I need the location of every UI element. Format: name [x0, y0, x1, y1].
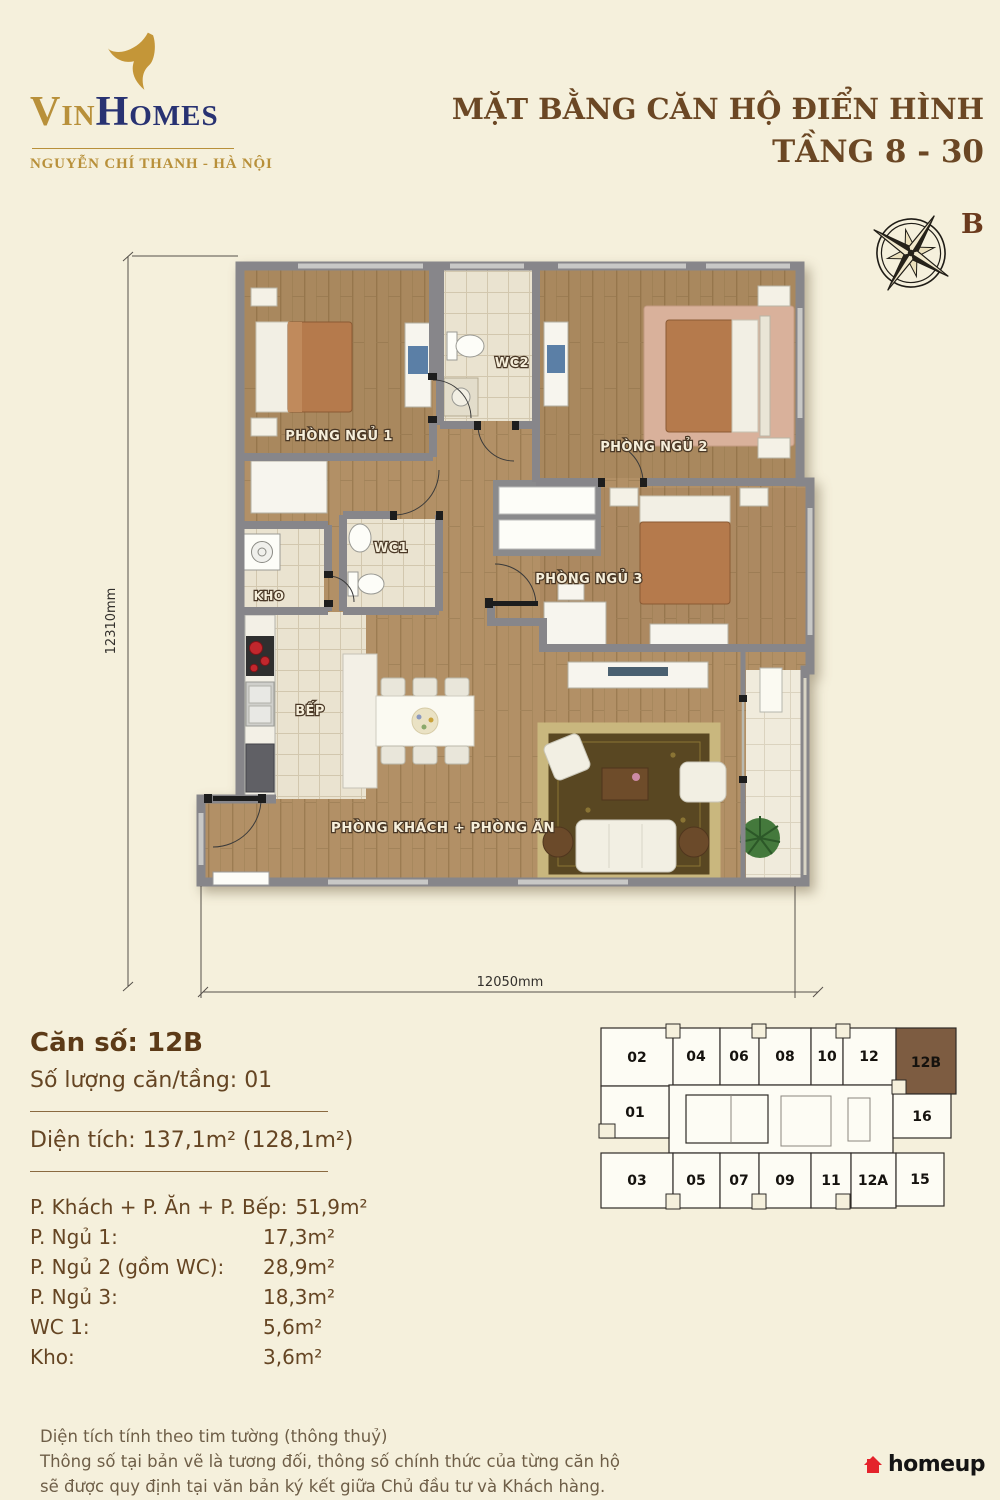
keyplan-unit: 15 — [910, 1172, 929, 1188]
brand-subtitle: NGUYỄN CHÍ THANH - HÀ NỘI — [30, 156, 273, 173]
room-label-bedroom3: PHÒNG NGỦ 3 — [535, 570, 643, 587]
compass-star — [853, 193, 972, 311]
room-area-label: P. Khách + P. Ăn + P. Bếp: — [30, 1192, 295, 1222]
brand-name-homes: Homes — [96, 89, 219, 135]
room-label-wc1: WC1 — [374, 541, 408, 556]
room-area-list: P. Khách + P. Ăn + P. Bếp: 51,9m² P. Ngủ… — [30, 1192, 450, 1372]
keyplan-unit: 12A — [858, 1173, 888, 1189]
brand-name: VinHomes — [30, 88, 219, 136]
floor-plan: PHÒNG NGỦ 1 WC2 PHÒNG NGỦ 2 WC1 KHO PHÒN… — [88, 250, 860, 1010]
room-label-living-dining: PHÒNG KHÁCH + PHÒNG ĂN — [331, 818, 555, 836]
room-area-row: WC 1: 5,6m² — [30, 1312, 450, 1342]
dimension-left: 12310mm — [104, 588, 119, 655]
compass-north-label: B — [961, 209, 984, 240]
homeup-label: homeup — [888, 1452, 985, 1477]
room-area-label: P. Ngủ 1: — [30, 1222, 263, 1252]
vinhomes-bird-icon — [108, 32, 160, 94]
info-divider-1 — [30, 1111, 328, 1112]
info-divider-2 — [30, 1171, 328, 1172]
keyplan-unit-highlighted: 12B — [911, 1055, 941, 1071]
dining-set — [376, 678, 474, 764]
keyplan-unit: 16 — [912, 1109, 931, 1125]
brand-divider — [32, 148, 234, 149]
disclaimer-line3: sẽ được quy định tại văn bản ký kết giữa… — [40, 1474, 620, 1499]
dimension-bottom: 12050mm — [477, 975, 544, 990]
units-per-floor: Số lượng căn/tầng: 01 — [30, 1068, 450, 1093]
room-area-value: 28,9m² — [263, 1252, 335, 1282]
keyplan-unit: 05 — [686, 1173, 705, 1189]
keyplan-unit: 11 — [821, 1173, 840, 1189]
brochure-page: { "page": {"background": "#f5f0dc"}, "br… — [0, 0, 1000, 1500]
unit-area: Diện tích: 137,1m² (128,1m²) — [30, 1128, 450, 1153]
keyplan-unit: 06 — [729, 1049, 748, 1065]
keyplan-unit: 01 — [625, 1105, 644, 1121]
keyplan-unit: 09 — [775, 1173, 794, 1189]
brand-name-vin: Vin — [30, 89, 96, 135]
page-title-line1: MẶT BẰNG CĂN HỘ ĐIỂN HÌNH — [452, 88, 984, 130]
room-area-row: P. Ngủ 2 (gồm WC): 28,9m² — [30, 1252, 450, 1282]
keyplan-unit: 07 — [729, 1173, 748, 1189]
room-area-label: P. Ngủ 2 (gồm WC): — [30, 1252, 263, 1282]
room-label-kitchen: BẾP — [295, 702, 325, 719]
keyplan-unit: 03 — [627, 1173, 646, 1189]
entry-window — [213, 872, 269, 885]
disclaimer-line1: Diện tích tính theo tim tường (thông thu… — [40, 1424, 620, 1449]
room-area-label: Kho: — [30, 1342, 263, 1372]
room-area-value: 5,6m² — [263, 1312, 322, 1342]
room-label-wc2: WC2 — [495, 356, 529, 371]
room-label-bedroom2: PHÒNG NGỦ 2 — [600, 438, 708, 455]
keyplan-unit: 02 — [627, 1050, 646, 1066]
keyplan-unit: 12 — [859, 1049, 878, 1065]
room-label-storage: KHO — [254, 589, 285, 603]
room-area-row: Kho: 3,6m² — [30, 1342, 450, 1372]
homeup-credit: homeup — [862, 1452, 985, 1477]
keyplan-unit: 08 — [775, 1049, 794, 1065]
keyplan-unit: 04 — [686, 1049, 706, 1065]
unit-info-panel: Căn số: 12B Số lượng căn/tầng: 01 Diện t… — [30, 1028, 450, 1372]
keyplan-unit: 10 — [817, 1049, 837, 1065]
page-title: MẶT BẰNG CĂN HỘ ĐIỂN HÌNH TẦNG 8 - 30 — [452, 88, 984, 175]
disclaimer-line2: Thông số tại bản vẽ là tương đối, thông … — [40, 1449, 620, 1474]
compass-rose: B — [853, 193, 993, 311]
homeup-house-icon — [862, 1454, 884, 1476]
room-area-row: P. Ngủ 3: 18,3m² — [30, 1282, 450, 1312]
unit-number: Căn số: 12B — [30, 1028, 450, 1058]
room-area-value: 18,3m² — [263, 1282, 335, 1312]
room-area-label: P. Ngủ 3: — [30, 1282, 263, 1312]
page-title-line2: TẦNG 8 - 30 — [452, 130, 984, 175]
room-area-value: 51,9m² — [295, 1192, 367, 1222]
room-label-bedroom1: PHÒNG NGỦ 1 — [285, 427, 393, 444]
room-area-row: P. Ngủ 1: 17,3m² — [30, 1222, 450, 1252]
room-area-value: 17,3m² — [263, 1222, 335, 1252]
room-area-label: WC 1: — [30, 1312, 263, 1342]
disclaimer: Diện tích tính theo tim tường (thông thu… — [40, 1424, 620, 1499]
floor-key-plan: 02 04 06 08 10 12 12B 01 16 03 05 07 09 … — [596, 1020, 968, 1218]
room-area-row: P. Khách + P. Ăn + P. Bếp: 51,9m² — [30, 1192, 450, 1222]
room-area-value: 3,6m² — [263, 1342, 322, 1372]
washing-machine — [244, 534, 280, 570]
